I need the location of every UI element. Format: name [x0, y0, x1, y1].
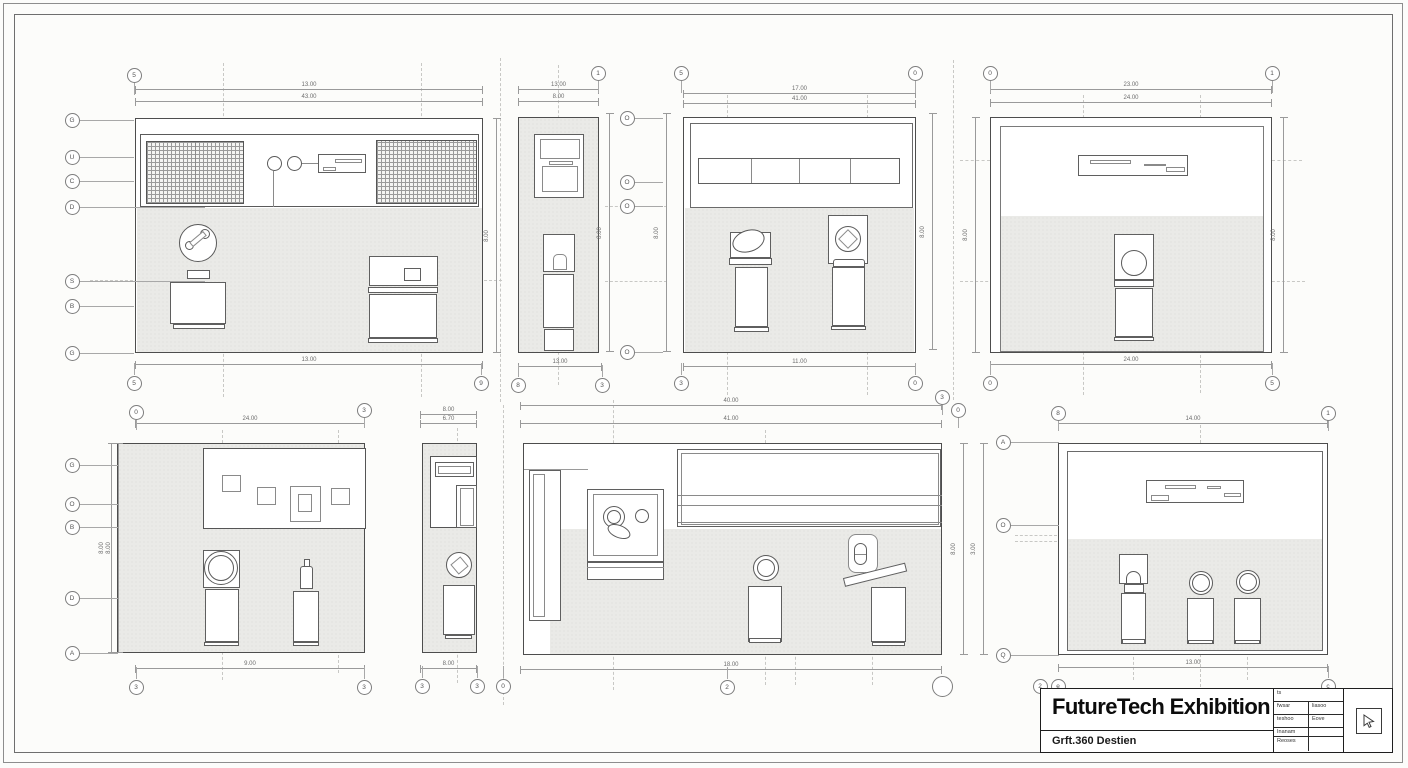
- gallery-panel: [203, 448, 366, 529]
- dimension-label: 13.00: [301, 82, 316, 88]
- dimension-label: 8.00: [1271, 229, 1277, 241]
- dimension: 11.00: [683, 366, 916, 367]
- pedestal-neck: [187, 270, 210, 279]
- shelf-bar: [549, 161, 573, 165]
- dimension-label: 41.00: [792, 96, 807, 102]
- dimension: 8.00: [420, 668, 477, 669]
- dimension-label: 8.00: [484, 230, 490, 242]
- grid-bubble: 1: [1265, 66, 1280, 81]
- pedestal-plinth: [734, 327, 769, 332]
- bubble-leader: [80, 207, 205, 208]
- dimension: 41.00: [520, 423, 942, 424]
- artwork-frame: [290, 486, 321, 522]
- sign-tag: [1207, 486, 1221, 489]
- bubble-leader: [136, 420, 137, 430]
- dimension-label: 6.70: [443, 416, 455, 422]
- bubble-leader: [80, 598, 118, 599]
- sign-panel: [1146, 480, 1244, 503]
- bubble-leader: [80, 353, 134, 354]
- pedestal-base: [1234, 598, 1261, 644]
- bubble-leader: [503, 666, 504, 678]
- dimension-label: 8.00: [963, 229, 969, 241]
- dimension: 13.00: [1058, 667, 1328, 668]
- pedestal-shelf: [729, 258, 772, 265]
- ring-exhibit-inner: [1192, 574, 1210, 592]
- grid-bubble: 0: [496, 679, 511, 694]
- bubble-leader: [681, 363, 682, 375]
- dimension: 13.00: [518, 366, 602, 367]
- bubble-leader: [915, 81, 916, 93]
- bubble-leader: [1011, 442, 1059, 443]
- sheet-subtitle: Grft.360 Destien: [1052, 735, 1136, 747]
- pedestal-base: [443, 585, 475, 635]
- grid-bubble: D: [65, 591, 80, 606]
- beam-line: [678, 495, 942, 496]
- grid-bubble: 0: [129, 405, 144, 420]
- beam-line: [678, 505, 942, 506]
- dimension: 8.00: [1283, 117, 1284, 353]
- grid-bubble: C: [65, 174, 80, 189]
- bubble-leader: [1058, 421, 1059, 431]
- pedestal-plinth: [1114, 337, 1154, 341]
- dimension-label: 40.00: [723, 398, 738, 404]
- centerline: [953, 60, 954, 400]
- dimension-label: 18.00: [723, 662, 738, 668]
- hanging-orb: [635, 509, 649, 523]
- bubble-leader: [727, 667, 728, 679]
- bubble-leader: [635, 182, 663, 183]
- vitrine-base: [543, 274, 574, 328]
- grid-bubble: 2: [720, 680, 735, 695]
- sign-tag: [1224, 493, 1241, 497]
- title-block-cell: Eove: [1308, 715, 1343, 727]
- bubble-leader: [80, 465, 118, 466]
- bubble-leader: [1272, 81, 1273, 93]
- dimension-label: 8.00: [597, 227, 603, 239]
- pedestal-base: [748, 586, 782, 642]
- sign-tag: [1166, 167, 1185, 172]
- bubble-leader: [915, 363, 916, 375]
- bottle-exhibit: [300, 566, 313, 589]
- display-case: [587, 489, 664, 562]
- artwork-square: [331, 488, 350, 505]
- grid-bubble: G: [65, 346, 80, 361]
- dome-exhibit: [1126, 571, 1141, 583]
- grid-bubble: 3: [470, 679, 485, 694]
- bubble-leader: [80, 527, 118, 528]
- grid-bubble: 3: [415, 679, 430, 694]
- dimension-label: 17.00: [792, 86, 807, 92]
- bubble-leader: [364, 418, 365, 428]
- globe-exhibit: [1121, 250, 1147, 276]
- case-shelf: [368, 287, 438, 293]
- display-column-inner: [460, 488, 474, 526]
- bubble-leader: [80, 306, 134, 307]
- dimension: 18.00: [520, 669, 942, 670]
- dimension-label: 8.00: [99, 542, 105, 554]
- title-block-cell: [1308, 689, 1343, 701]
- pedestal-plinth: [1235, 640, 1260, 644]
- exhibit-cube: [404, 268, 421, 281]
- pedestal-base: [293, 591, 319, 642]
- title-block-cell: ts: [1274, 689, 1308, 701]
- title-block: FutureTech Exhibition Grft.360 Destien t…: [1040, 688, 1393, 753]
- grid-bubble: 3: [357, 680, 372, 695]
- dimension: 13.00: [135, 364, 483, 365]
- pedestal-plinth: [831, 326, 866, 330]
- porthole-ring-inner: [757, 559, 775, 577]
- dimension: 9.00: [135, 668, 365, 669]
- dimension: 13.00: [135, 89, 483, 90]
- pedestal-base: [1115, 288, 1153, 337]
- centerline: [1272, 160, 1302, 161]
- dimension: 41.00: [683, 103, 916, 104]
- artwork-square: [257, 487, 276, 505]
- dimension: 40.00: [520, 405, 942, 406]
- grid-bubble: 0: [908, 66, 923, 81]
- grid-bubble: D: [65, 200, 80, 215]
- centerline: [1015, 541, 1057, 542]
- pedestal-plinth: [1122, 639, 1145, 644]
- bubble-leader: [80, 281, 205, 282]
- dimension-label: 41.00: [723, 416, 738, 422]
- bubble-leader: [990, 363, 991, 375]
- orb-exhibit: [446, 552, 472, 578]
- window-strip: [698, 158, 900, 184]
- pedestal-base: [832, 267, 865, 326]
- dimension: 8.00: [975, 117, 976, 353]
- drawing-sheet: 13.0043.0013.0013.008.0013.0017.0041.001…: [0, 0, 1408, 768]
- bubble-leader: [1011, 655, 1059, 656]
- bubble-leader: [134, 83, 135, 95]
- bubble-leader: [958, 418, 959, 428]
- vitrine-plinth: [544, 329, 574, 351]
- capsule-line: [855, 554, 866, 555]
- exhibit-frame: [1119, 554, 1148, 584]
- pedestal-base: [735, 267, 768, 327]
- dimension-label: 8.00: [920, 226, 926, 238]
- grid-bubble: 3: [674, 376, 689, 391]
- grid-bubble: G: [65, 113, 80, 128]
- cursor-icon-glyph: [1361, 713, 1377, 729]
- dimension: 24.00: [135, 423, 365, 424]
- centerline: [500, 58, 501, 402]
- dimension-label: 13.00: [1185, 660, 1200, 666]
- elevation-f: [422, 443, 477, 653]
- elevation-e: [117, 443, 365, 653]
- dimension: 8.00: [609, 113, 610, 352]
- dimension: 6.70: [420, 423, 477, 424]
- robot-arm-link: [189, 231, 207, 247]
- bubble-leader: [635, 206, 663, 207]
- dimension: 24.00: [990, 364, 1272, 365]
- title-divider: [1041, 730, 1273, 731]
- tag-circle: [287, 156, 302, 171]
- title-block-row: teshooEove: [1274, 715, 1343, 728]
- bubble-leader: [80, 157, 134, 158]
- elevation-a: [135, 118, 483, 353]
- exhibit-object: [553, 254, 567, 270]
- grid-bubble: 1: [591, 66, 606, 81]
- bubble-leader: [477, 666, 478, 678]
- sign-bar: [335, 159, 362, 163]
- grid-bubble: G: [65, 458, 80, 473]
- grid-bubble: 0: [908, 376, 923, 391]
- case-inner-frame: [593, 494, 658, 556]
- dimension-label: 8.00: [443, 661, 455, 667]
- sign-panel: [318, 154, 366, 173]
- dimension: 8.00: [963, 443, 964, 655]
- grid-bubble: 0: [983, 66, 998, 81]
- grid-bubble: 1: [1321, 406, 1336, 421]
- title-block-cell: liasoo: [1308, 702, 1343, 714]
- grid-bubble: O: [620, 345, 635, 360]
- dimension: 3.00: [983, 443, 984, 655]
- sign-bar: [1165, 485, 1196, 489]
- dimension-label: 13.00: [552, 359, 567, 365]
- dimension-label: 8.00: [654, 227, 660, 239]
- mullion: [799, 159, 800, 183]
- title-block-cell: [1308, 737, 1343, 751]
- sign-bar: [1090, 160, 1131, 164]
- pedestal-base: [205, 589, 239, 642]
- bubble-leader: [518, 365, 519, 377]
- grid-bubble: A: [65, 646, 80, 661]
- header-beam: [677, 449, 941, 527]
- title-block-table: tsfwsarliasooteshooEoveInanamReoses: [1274, 689, 1344, 752]
- grid-bubble: 3: [595, 378, 610, 393]
- case-base: [369, 294, 437, 338]
- grid-bubble: O: [996, 518, 1011, 533]
- centerline: [503, 405, 504, 705]
- title-block-row: ts: [1274, 689, 1343, 702]
- pedestal-neck: [1124, 584, 1144, 593]
- dimension-label: 8.00: [106, 542, 112, 554]
- dimension: 8.00: [666, 113, 667, 352]
- bubble-leader: [681, 81, 682, 93]
- artwork-inner: [298, 494, 312, 512]
- grid-bubble: 8: [511, 378, 526, 393]
- dimension-label: 43.00: [301, 94, 316, 100]
- bubble-leader: [598, 81, 599, 93]
- dimension-label: 24.00: [1123, 357, 1138, 363]
- dimension: 24.00: [990, 102, 1272, 103]
- bubble-leader: [635, 352, 663, 353]
- pedestal-base: [1187, 598, 1214, 644]
- bubble-leader: [80, 120, 134, 121]
- tag-circle: [267, 156, 282, 171]
- bubble-leader: [80, 504, 118, 505]
- dimension-label: 8.00: [553, 94, 565, 100]
- pedestal-plinth: [204, 642, 239, 646]
- bubble-leader: [136, 667, 137, 679]
- bubble-leader: [990, 81, 991, 93]
- grid-bubble: U: [65, 150, 80, 165]
- title-block-cell: [1308, 728, 1343, 736]
- grid-bubble: B: [65, 520, 80, 535]
- sign-tag: [1151, 495, 1169, 501]
- sign-line: [1144, 164, 1166, 166]
- door-panel-inner: [533, 474, 545, 617]
- dimension-label: 24.00: [242, 416, 257, 422]
- dimension: 8.00: [932, 113, 933, 350]
- tag-leader-line: [302, 163, 318, 164]
- title-block-cell: teshoo: [1274, 715, 1308, 727]
- vitrine-glass: [543, 234, 575, 272]
- bubble-leader: [1328, 421, 1329, 431]
- grid-bubble: 9: [474, 376, 489, 391]
- dimension: 14.00: [1058, 423, 1328, 424]
- grid-bubble: O: [620, 199, 635, 214]
- sign-tag: [323, 167, 336, 171]
- grid-bubble: 3: [935, 390, 950, 405]
- bubble-leader: [602, 365, 603, 377]
- ring-exhibit-inner: [1239, 573, 1257, 591]
- bubble-leader: [422, 666, 423, 678]
- dimension: 8.00: [518, 101, 599, 102]
- grid-bubble: 8: [1051, 406, 1066, 421]
- dimension: 23.00: [990, 89, 1272, 90]
- title-block-row: Inanam: [1274, 728, 1343, 737]
- artwork-square: [222, 475, 241, 492]
- porthole-ring-inner: [208, 555, 234, 581]
- grid-bubble: 3: [357, 403, 372, 418]
- pedestal-plinth: [445, 635, 472, 639]
- wall-surface: [685, 208, 914, 352]
- bubble-leader: [635, 118, 663, 119]
- elevation-g: [523, 443, 942, 655]
- bubble-leader: [1272, 363, 1273, 375]
- dimension: 13.00: [518, 89, 599, 90]
- pedestal-plinth: [872, 642, 905, 646]
- dimension: 8.00: [118, 443, 119, 653]
- dimension-label: 11.00: [792, 359, 807, 365]
- elevation-b: [518, 117, 599, 353]
- centerline: [1015, 535, 1057, 536]
- mesh-panel-left: [146, 141, 244, 204]
- screen-panel: [540, 139, 580, 159]
- elevation-d: [990, 117, 1272, 353]
- bubble-leader: [942, 405, 943, 415]
- grid-bubble: O: [620, 175, 635, 190]
- beam-inner: [681, 453, 939, 525]
- case-plinth: [368, 338, 438, 343]
- bubble-leader: [1011, 525, 1059, 526]
- grid-bubble: O: [65, 497, 80, 512]
- dimension-label: 14.00: [1185, 416, 1200, 422]
- pedestal-plinth: [293, 642, 319, 646]
- grid-bubble: 3: [129, 680, 144, 695]
- dimension-label: 13.00: [551, 82, 566, 88]
- bubble-leader: [481, 363, 482, 375]
- title-block-cell: Inanam: [1274, 728, 1308, 736]
- dimension: 8.00: [420, 414, 477, 415]
- sign-panel: [1078, 155, 1188, 176]
- bubble-leader: [364, 667, 365, 679]
- vr-headset-inner: [607, 510, 621, 524]
- orb-core: [450, 556, 468, 574]
- bubble-leader: [80, 181, 134, 182]
- grid-bubble: 5: [1265, 376, 1280, 391]
- media-panel: [430, 456, 477, 528]
- grid-bubble: 5: [127, 68, 142, 83]
- centerline: [605, 281, 667, 282]
- bubble-leader: [134, 363, 135, 375]
- dimension-label: 8.00: [951, 543, 957, 555]
- mullion: [751, 159, 752, 183]
- dimension-label: 9.00: [244, 661, 256, 667]
- title-block-cell: Reoses: [1274, 737, 1308, 751]
- elevation-c: [683, 117, 916, 353]
- case-base-line: [587, 567, 664, 568]
- pedestal-plinth: [1188, 640, 1213, 644]
- title-block-icon-cell: [1344, 689, 1392, 752]
- orb-core: [838, 229, 858, 249]
- grid-bubble: Q: [996, 648, 1011, 663]
- tall-door-panel: [529, 470, 561, 621]
- bubble-leader: [1328, 666, 1329, 678]
- media-wall-frame: [534, 134, 584, 198]
- elevation-h: [1058, 443, 1328, 655]
- grid-bubble: 5: [674, 66, 689, 81]
- dimension-label: 24.00: [1123, 95, 1138, 101]
- grid-bubble: A: [996, 435, 1011, 450]
- pedestal-plinth: [749, 638, 781, 643]
- dimension: 17.00: [683, 93, 916, 94]
- dimension-label: 3.00: [971, 543, 977, 555]
- robot-arm-exhibit: [179, 224, 217, 262]
- exhibit-frame: [1114, 234, 1154, 280]
- sheet-title: FutureTech Exhibition: [1052, 694, 1270, 720]
- grid-bubble: 5: [127, 376, 142, 391]
- mesh-panel-right: [376, 140, 477, 204]
- grid-bubble: B: [65, 299, 80, 314]
- grid-bubble: S: [65, 274, 80, 289]
- title-block-row: Reoses: [1274, 737, 1343, 751]
- dimension: 8.00: [496, 118, 497, 353]
- pedestal-plinth: [173, 324, 225, 329]
- dimension-label: 23.00: [1123, 82, 1138, 88]
- cursor-icon: [1356, 708, 1382, 734]
- pedestal-shelf: [1114, 280, 1154, 287]
- header-bar: [435, 462, 474, 477]
- grid-bubble: O: [620, 111, 635, 126]
- bubble-leader: [80, 653, 118, 654]
- grid-bubble: [932, 676, 953, 697]
- grid-bubble: 0: [951, 403, 966, 418]
- dimension-label: 8.00: [443, 407, 455, 413]
- panel-divider: [195, 142, 196, 203]
- title-block-cell: fwsar: [1274, 702, 1308, 714]
- title-block-main: FutureTech Exhibition Grft.360 Destien: [1041, 689, 1274, 752]
- pedestal-base: [1121, 593, 1146, 644]
- pedestal-base: [871, 587, 906, 642]
- beam-line: [678, 522, 942, 523]
- monitor-panel: [542, 166, 578, 192]
- display-column: [456, 485, 477, 528]
- pedestal-base: [170, 282, 226, 324]
- header-bar-inner: [438, 466, 471, 474]
- dimension-label: 13.00: [301, 357, 316, 363]
- pedestal-cap: [833, 259, 865, 267]
- title-block-row: fwsarliasoo: [1274, 702, 1343, 715]
- dimension: 43.00: [135, 101, 483, 102]
- case-base: [587, 562, 664, 580]
- mullion: [850, 159, 851, 183]
- orb-exhibit: [835, 226, 861, 252]
- grid-bubble: 0: [983, 376, 998, 391]
- tag-leader-line: [273, 171, 274, 207]
